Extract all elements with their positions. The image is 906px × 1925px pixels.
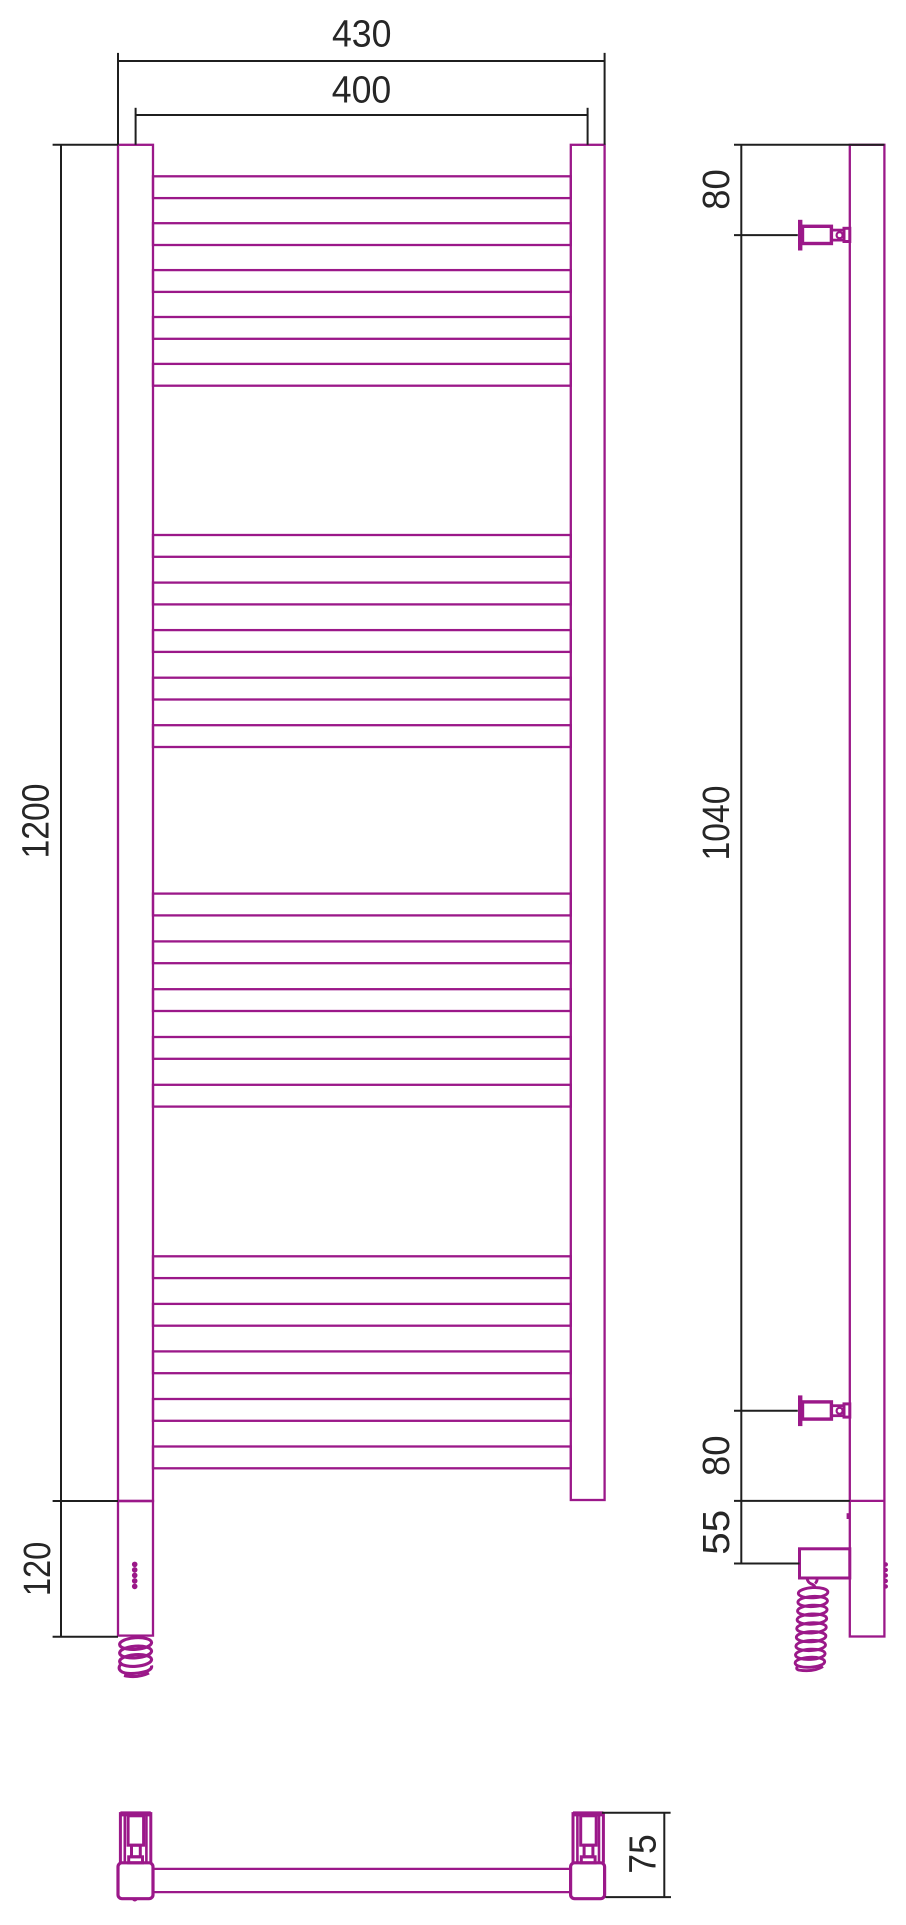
svg-text:400: 400 <box>332 69 392 111</box>
svg-text:55: 55 <box>696 1510 738 1555</box>
svg-text:1200: 1200 <box>15 784 57 859</box>
svg-text:75: 75 <box>622 1834 664 1874</box>
svg-text:120: 120 <box>17 1542 59 1597</box>
svg-text:430: 430 <box>332 13 392 55</box>
svg-text:1040: 1040 <box>696 786 738 861</box>
svg-text:80: 80 <box>696 169 738 210</box>
svg-text:80: 80 <box>696 1436 738 1477</box>
